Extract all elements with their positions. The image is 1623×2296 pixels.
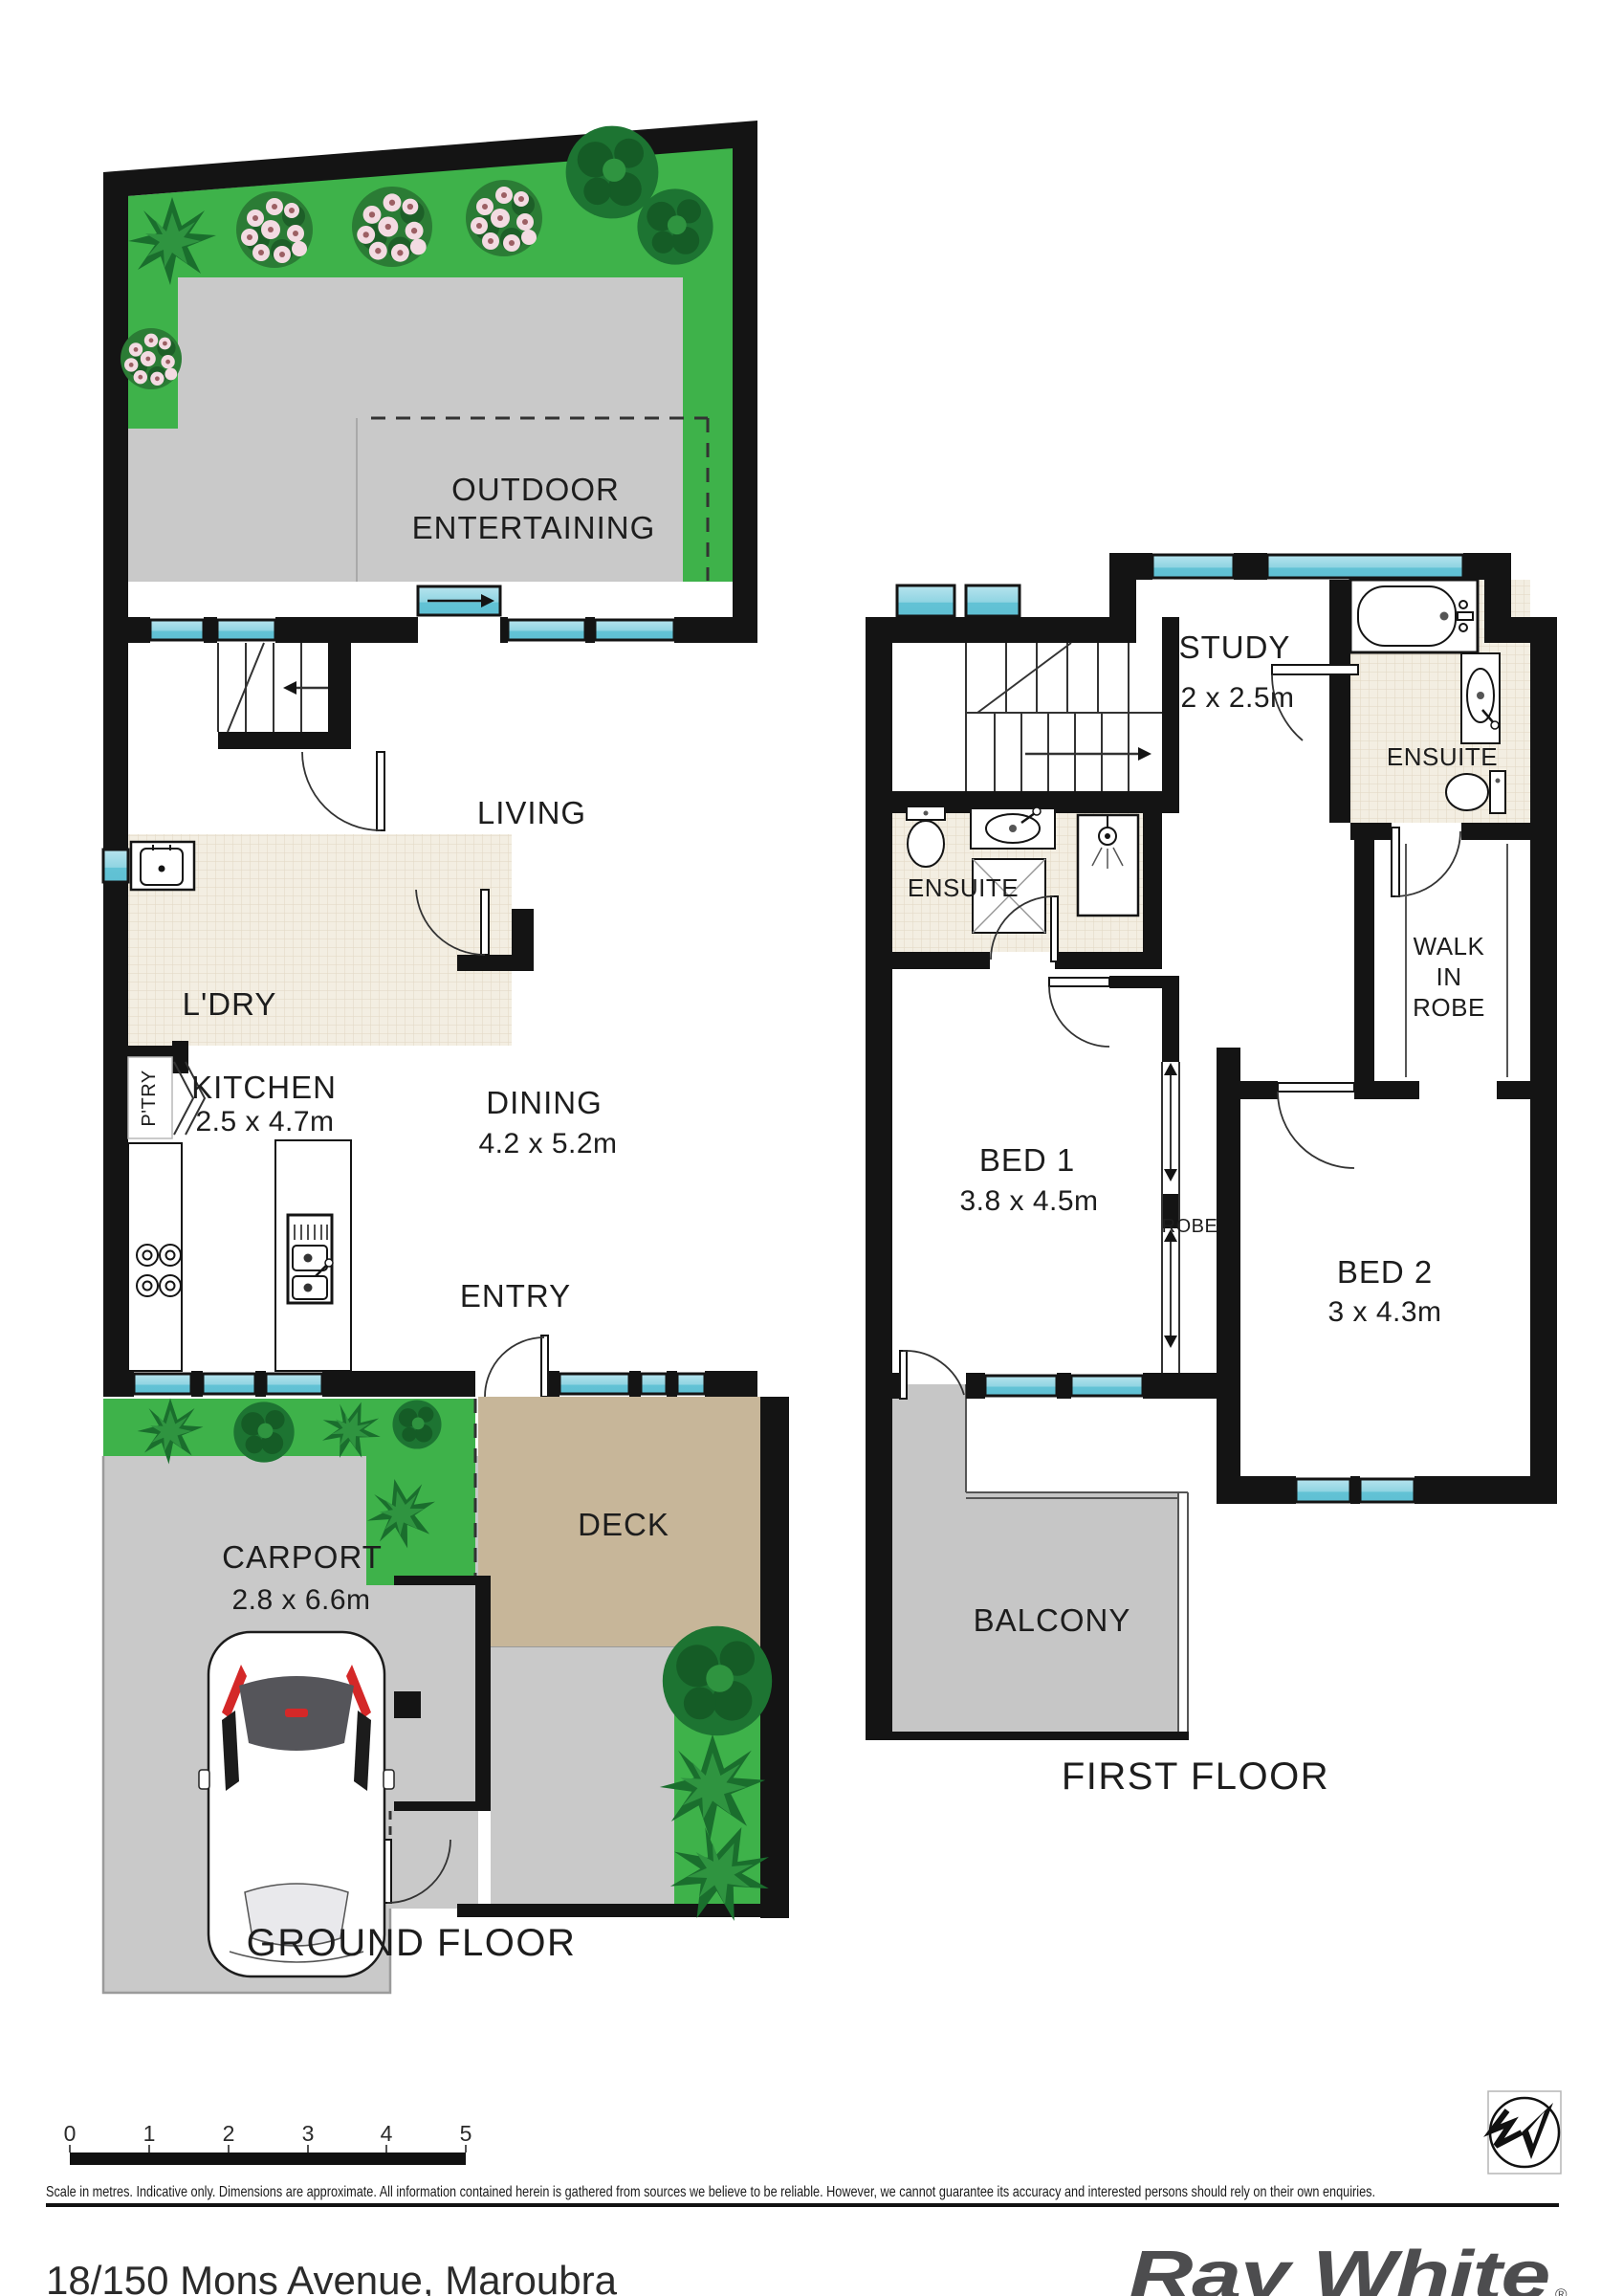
wir-rails bbox=[1406, 844, 1507, 1077]
label-kitchen: KITCHEN bbox=[191, 1070, 337, 1105]
label-ptry: P'TRY bbox=[139, 1070, 160, 1126]
scale-tick-5: 5 bbox=[460, 2121, 472, 2146]
stairs-first bbox=[966, 643, 1162, 791]
ground-floor-plan: OUTDOOR ENTERTAINING bbox=[103, 121, 789, 1993]
label-wir-line3: ROBE bbox=[1413, 993, 1485, 1022]
label-study: STUDY bbox=[1179, 629, 1291, 665]
label-robe: ROBE bbox=[1162, 1216, 1218, 1237]
scale-tick-4: 4 bbox=[381, 2121, 393, 2146]
ray-white-logo: Ray White bbox=[1129, 2238, 1549, 2296]
bed1-door bbox=[1049, 978, 1109, 1047]
label-outdoor-line2: ENTERTAINING bbox=[412, 510, 656, 545]
label-entry: ENTRY bbox=[460, 1278, 571, 1314]
label-living: LIVING bbox=[477, 795, 586, 830]
sliding-door bbox=[418, 586, 500, 615]
label-bed1: BED 1 bbox=[979, 1142, 1075, 1178]
registered-mark: ® bbox=[1555, 2285, 1568, 2296]
toilet-icon-left-ensuite bbox=[907, 806, 945, 867]
label-balcony: BALCONY bbox=[974, 1602, 1131, 1638]
label-wir-line1: WALK bbox=[1414, 932, 1485, 960]
floorplan-page: OUTDOOR ENTERTAINING bbox=[0, 0, 1623, 2296]
laundry-sink-icon bbox=[131, 842, 194, 890]
scale-tick-1: 1 bbox=[143, 2121, 156, 2146]
label-ensuite-top: ENSUITE bbox=[1387, 742, 1498, 771]
floorplan-canvas: OUTDOOR ENTERTAINING bbox=[0, 0, 1623, 2296]
balcony-area bbox=[892, 1384, 1178, 1733]
basin-icon-left-ensuite bbox=[971, 807, 1055, 849]
label-wir-line2: IN bbox=[1437, 962, 1462, 991]
shower-stall-icon bbox=[1078, 815, 1138, 916]
toilet-icon-top-ensuite bbox=[1446, 771, 1505, 813]
label-bed1-dims: 3.8 x 4.5m bbox=[959, 1185, 1098, 1217]
island-sink-icon bbox=[288, 1215, 333, 1303]
label-bed2-dims: 3 x 4.3m bbox=[1327, 1296, 1441, 1328]
deck-post bbox=[394, 1691, 421, 1718]
scale-bar: 0 1 2 3 4 5 bbox=[64, 2121, 472, 2165]
property-address: 18/150 Mons Avenue, Maroubra bbox=[46, 2258, 618, 2296]
label-bed2: BED 2 bbox=[1337, 1254, 1433, 1290]
compass-icon bbox=[1488, 2091, 1561, 2174]
footer-divider bbox=[46, 2203, 1559, 2207]
disclaimer-text: Scale in metres. Indicative only. Dimens… bbox=[46, 2184, 1375, 2200]
bed2-door bbox=[1278, 1083, 1354, 1168]
label-carport-dims: 2.8 x 6.6m bbox=[231, 1584, 370, 1616]
stairs-up-arrow-icon bbox=[1138, 747, 1151, 761]
scale-tick-3: 3 bbox=[302, 2121, 315, 2146]
label-dining: DINING bbox=[486, 1085, 603, 1120]
wir-door bbox=[1392, 828, 1460, 896]
label-carport: CARPORT bbox=[222, 1539, 383, 1575]
label-deck: DECK bbox=[578, 1507, 669, 1542]
laundry-window bbox=[103, 850, 128, 882]
first-floor-title: FIRST FLOOR bbox=[1062, 1755, 1329, 1798]
label-ldry: L'DRY bbox=[183, 986, 277, 1022]
ground-floor-title: GROUND FLOOR bbox=[247, 1922, 577, 1964]
first-floor-plan: BALCONY bbox=[866, 553, 1557, 1798]
basin-icon-top-ensuite bbox=[1461, 653, 1500, 743]
label-kitchen-dims: 2.5 x 4.7m bbox=[195, 1106, 334, 1137]
scale-tick-0: 0 bbox=[64, 2121, 77, 2146]
label-study-dims: 2 x 2.5m bbox=[1180, 682, 1294, 714]
scale-tick-2: 2 bbox=[223, 2121, 235, 2146]
label-dining-dims: 4.2 x 5.2m bbox=[478, 1128, 617, 1159]
label-outdoor-line1: OUTDOOR bbox=[451, 472, 620, 507]
bath-icon bbox=[1350, 580, 1478, 652]
label-ensuite-left: ENSUITE bbox=[908, 873, 1019, 902]
